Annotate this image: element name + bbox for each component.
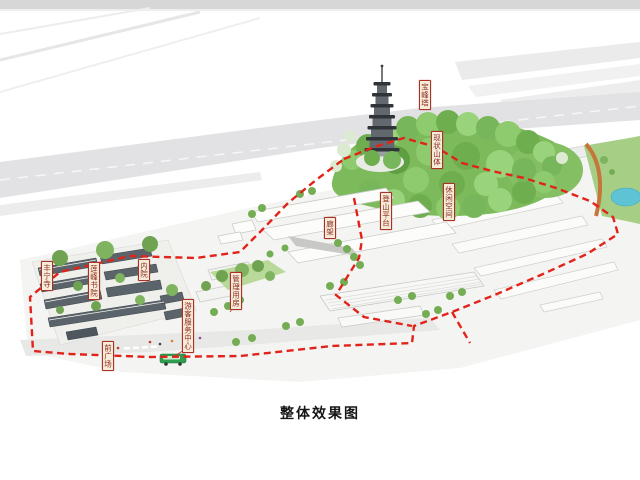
label-pagoda: 宝峰塔	[419, 80, 431, 110]
label-existing-hill: 现状山体	[431, 131, 443, 169]
label-management-building: 管理用房	[230, 272, 242, 310]
label-leisure-space: 休闲空间	[443, 183, 455, 221]
label-climbing-platform: 登山平台	[380, 192, 392, 230]
label-inner-courtyard: 内院	[138, 259, 150, 281]
label-front-plaza: 前广场	[102, 341, 114, 371]
label-visitor-center: 游客服务中心	[182, 299, 194, 353]
label-pergola: 廊架	[324, 217, 336, 239]
figure-caption: 整体效果图	[0, 403, 640, 423]
label-fengning-temple: 丰宁寺	[41, 261, 53, 291]
pond	[611, 188, 640, 206]
rendering-page: 丰宁寺 莲峰书院 内院 前广场 游客服务中心 管理用房 廊架 登山平台 休闲空间…	[0, 0, 640, 480]
label-lianfeng-academy: 莲峰书院	[88, 262, 100, 300]
